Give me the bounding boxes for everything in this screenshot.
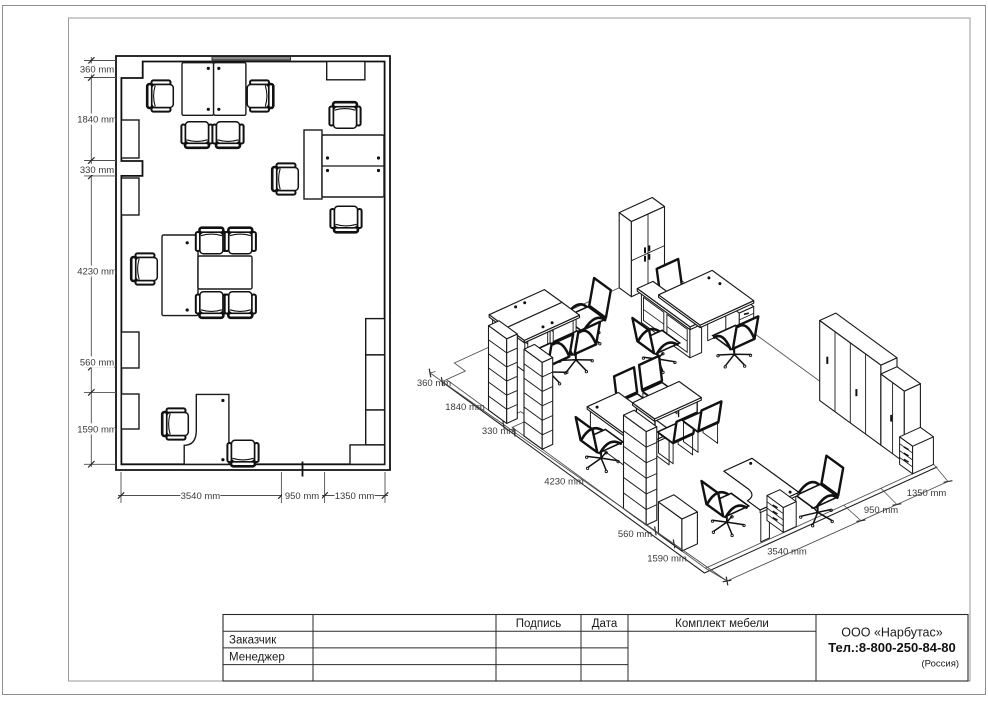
svg-text:330 mm: 330 mm: [482, 426, 516, 437]
svg-text:560 mm: 560 mm: [618, 529, 652, 540]
svg-text:360 mm: 360 mm: [417, 378, 451, 389]
svg-text:Дата: Дата: [592, 618, 618, 630]
svg-text:950 mm: 950 mm: [864, 505, 898, 516]
svg-text:950 mm: 950 mm: [285, 491, 319, 502]
svg-text:3540 mm: 3540 mm: [181, 491, 221, 502]
svg-text:Менеджер: Менеджер: [229, 651, 285, 663]
svg-text:1590 mm: 1590 mm: [647, 554, 687, 565]
svg-text:330 mm: 330 mm: [80, 165, 114, 176]
svg-text:(Россия): (Россия): [922, 659, 959, 670]
svg-text:360 mm: 360 mm: [80, 65, 114, 76]
svg-text:1350 mm: 1350 mm: [335, 491, 375, 502]
svg-text:560 mm: 560 mm: [80, 358, 114, 369]
svg-text:ООО «Нарбутас»: ООО «Нарбутас»: [841, 626, 942, 640]
svg-text:1590 mm: 1590 mm: [77, 425, 117, 436]
svg-text:1350 mm: 1350 mm: [907, 488, 947, 499]
svg-text:4230 mm: 4230 mm: [77, 267, 117, 278]
svg-text:1840 mm: 1840 mm: [77, 115, 117, 126]
svg-text:Тел.:8-800-250-84-80: Тел.:8-800-250-84-80: [828, 640, 956, 655]
svg-text:Комплект мебели: Комплект мебели: [675, 618, 769, 630]
svg-text:3540 mm: 3540 mm: [767, 547, 807, 558]
svg-text:1840 mm: 1840 mm: [445, 402, 485, 413]
svg-text:Подпись: Подпись: [516, 618, 562, 630]
svg-text:Заказчик: Заказчик: [229, 635, 277, 647]
svg-text:4230 mm: 4230 mm: [544, 477, 584, 488]
